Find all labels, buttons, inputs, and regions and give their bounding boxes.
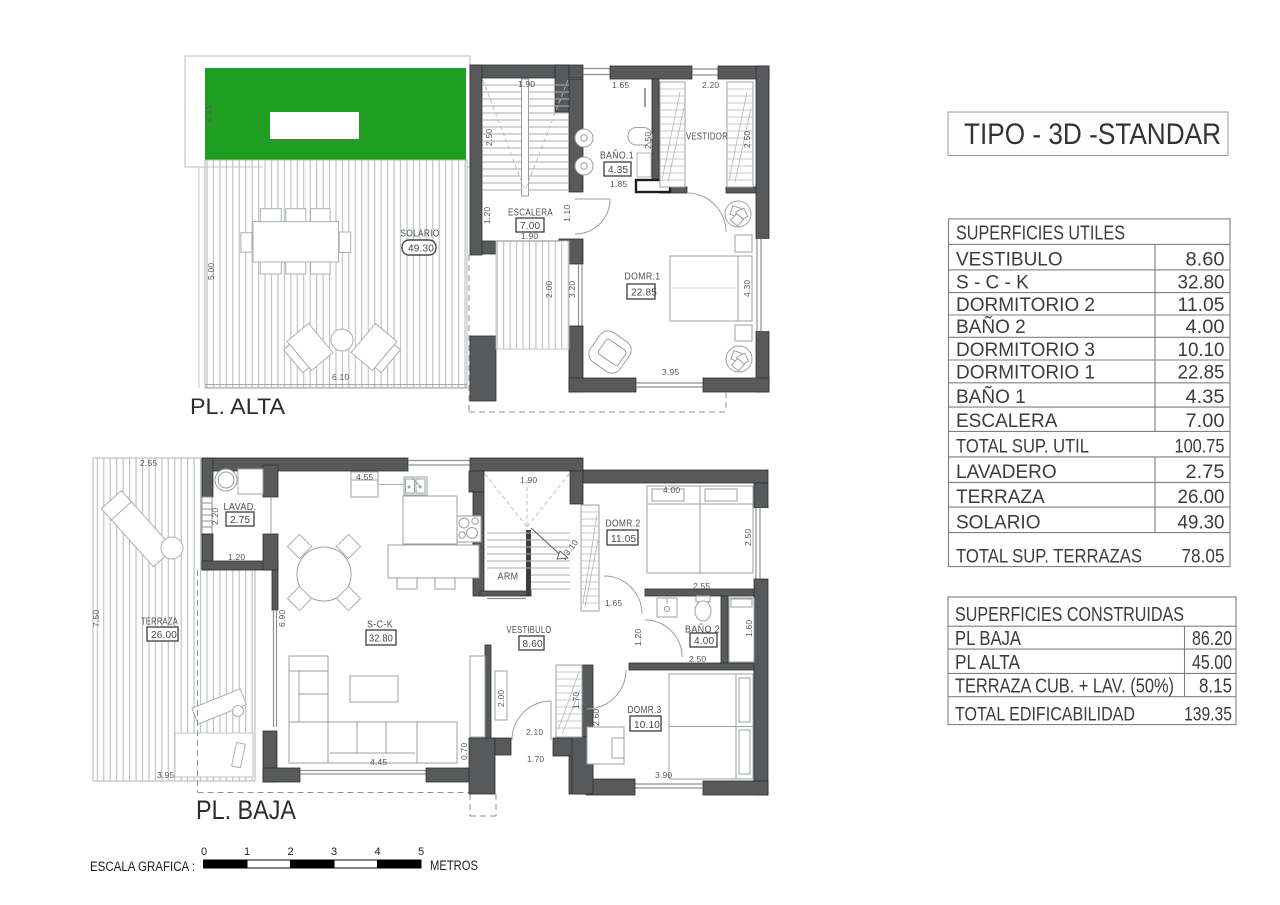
svg-text:6.10: 6.10 [332,372,349,382]
svg-text:BAÑO.1: BAÑO.1 [600,149,634,162]
svg-text:49.30: 49.30 [1178,512,1225,533]
svg-text:4.35: 4.35 [608,165,629,176]
svg-text:2.50: 2.50 [689,654,706,664]
svg-text:86.20: 86.20 [1192,628,1232,650]
svg-text:1.20: 1.20 [633,629,643,646]
svg-text:1.60: 1.60 [744,620,754,637]
svg-text:TERRAZA: TERRAZA [956,487,1045,508]
svg-text:4.45: 4.45 [370,757,387,767]
svg-text:2.50: 2.50 [742,131,752,148]
svg-text:4.30: 4.30 [742,280,752,297]
svg-text:VESTIBULO: VESTIBULO [956,250,1063,271]
svg-text:2.20: 2.20 [702,80,719,90]
svg-text:2.00: 2.00 [496,690,506,707]
svg-text:1.65: 1.65 [612,80,629,90]
svg-text:PL. BAJA: PL. BAJA [196,795,296,825]
svg-text:0: 0 [201,846,207,858]
svg-text:TOTAL EDIFICABILIDAD: TOTAL EDIFICABILIDAD [955,704,1135,725]
svg-text:ESCALERA: ESCALERA [508,208,553,219]
svg-text:3.90: 3.90 [655,770,672,780]
svg-text:S-C-K: S-C-K [367,620,393,631]
svg-text:2.55: 2.55 [693,581,710,591]
svg-text:5.00: 5.00 [206,263,216,280]
svg-text:26.00: 26.00 [1178,487,1225,508]
svg-text:3: 3 [331,846,337,858]
svg-text:2.75: 2.75 [230,515,251,526]
svg-text:TERRAZA: TERRAZA [141,617,178,628]
svg-text:ESCALA GRAFICA :: ESCALA GRAFICA : [90,859,195,874]
svg-text:32.80: 32.80 [369,634,393,645]
svg-text:2.60: 2.60 [591,709,601,726]
svg-text:DORMITORIO 3: DORMITORIO 3 [956,340,1095,361]
svg-text:1.65: 1.65 [605,598,622,608]
svg-text:PL BAJA: PL BAJA [955,628,1022,650]
svg-text:1.10: 1.10 [562,205,572,222]
svg-text:139.35: 139.35 [1184,704,1232,725]
svg-text:22.85: 22.85 [1178,363,1225,384]
svg-text:0.70: 0.70 [459,743,469,760]
svg-text:DOMR.2: DOMR.2 [606,519,641,530]
svg-text:1.20: 1.20 [482,207,492,224]
svg-text:SOLARIO: SOLARIO [956,512,1040,533]
svg-text:1.20: 1.20 [228,552,245,562]
svg-text:LAVADERO: LAVADERO [956,462,1057,483]
svg-text:2.55: 2.55 [140,458,157,468]
svg-text:TOTAL SUP. TERRAZAS: TOTAL SUP. TERRAZAS [956,546,1142,567]
svg-text:1.90: 1.90 [518,79,535,89]
svg-text:2.20: 2.20 [210,508,220,525]
svg-text:2.50: 2.50 [484,129,494,146]
svg-text:1.70: 1.70 [571,692,581,709]
svg-text:7.50: 7.50 [91,610,101,627]
svg-text:49.30: 49.30 [408,244,434,255]
svg-text:4.35: 4.35 [1186,387,1225,408]
svg-text:2: 2 [287,846,293,858]
svg-text:DOMR.3: DOMR.3 [628,705,662,716]
svg-text:ARM: ARM [498,572,519,583]
svg-text:4.55: 4.55 [356,472,373,482]
svg-text:2.00: 2.00 [544,281,554,298]
svg-text:SOLARIO: SOLARIO [401,229,440,240]
svg-text:DOMR.1: DOMR.1 [625,272,661,283]
svg-text:SUPERFICIES UTILES: SUPERFICIES UTILES [956,222,1125,244]
svg-text:1.90: 1.90 [521,231,538,241]
svg-text:78.05: 78.05 [1182,546,1225,567]
svg-text:PL. ALTA: PL. ALTA [190,394,285,419]
svg-text:1.85: 1.85 [610,179,627,189]
svg-text:2.50: 2.50 [743,529,753,546]
svg-text:11.05: 11.05 [611,534,637,545]
svg-text:DORMITORIO 1: DORMITORIO 1 [956,363,1095,384]
svg-text:ESCALERA: ESCALERA [956,411,1058,432]
svg-text:8.60: 8.60 [1186,250,1225,271]
svg-text:6.90: 6.90 [277,610,287,627]
svg-text:TOTAL SUP. UTIL: TOTAL SUP. UTIL [956,437,1089,458]
svg-text:3.95: 3.95 [157,770,174,780]
svg-text:BAÑO 1: BAÑO 1 [956,386,1026,408]
svg-text:1: 1 [244,846,250,858]
svg-text:2.15: 2.15 [203,105,213,122]
svg-text:VESTIDOR: VESTIDOR [686,132,728,143]
svg-text:4.00: 4.00 [694,636,715,647]
svg-text:100.75: 100.75 [1175,437,1225,458]
svg-text:4.00: 4.00 [663,485,680,495]
svg-text:10.10: 10.10 [634,720,660,731]
svg-text:26.00: 26.00 [151,630,177,641]
svg-text:SUPERFICIES CONSTRUIDAS: SUPERFICIES CONSTRUIDAS [955,604,1184,626]
svg-text:BAÑO 2: BAÑO 2 [956,316,1026,338]
svg-text:S - C - K: S - C - K [956,272,1029,293]
svg-text:TIPO - 3D -STANDAR: TIPO - 3D -STANDAR [964,118,1221,151]
svg-text:10.10: 10.10 [1178,340,1225,361]
svg-text:8.15: 8.15 [1199,675,1232,697]
svg-text:3.20: 3.20 [567,281,577,298]
svg-text:22.85: 22.85 [631,288,657,299]
svg-text:32.80: 32.80 [1178,272,1225,293]
svg-text:DORMITORIO 2: DORMITORIO 2 [956,295,1095,316]
svg-text:2.10: 2.10 [526,727,543,737]
svg-text:TERRAZA CUB. + LAV. (50%): TERRAZA CUB. + LAV. (50%) [955,675,1174,697]
svg-text:VESTIBULO: VESTIBULO [507,625,552,636]
svg-text:METROS: METROS [430,858,478,873]
svg-text:4: 4 [374,846,380,858]
svg-text:5: 5 [418,846,424,858]
svg-text:8.60: 8.60 [523,639,544,650]
svg-text:1.90: 1.90 [520,475,537,485]
svg-text:3.95: 3.95 [662,367,679,377]
svg-text:PL ALTA: PL ALTA [955,652,1021,674]
svg-text:4.00: 4.00 [1186,317,1225,338]
svg-text:1.70: 1.70 [527,754,544,764]
svg-text:2.75: 2.75 [1186,462,1225,483]
svg-text:2.50: 2.50 [643,132,653,149]
svg-text:45.00: 45.00 [1192,652,1232,674]
svg-text:7.00: 7.00 [1186,411,1225,432]
svg-text:11.05: 11.05 [1178,295,1225,316]
